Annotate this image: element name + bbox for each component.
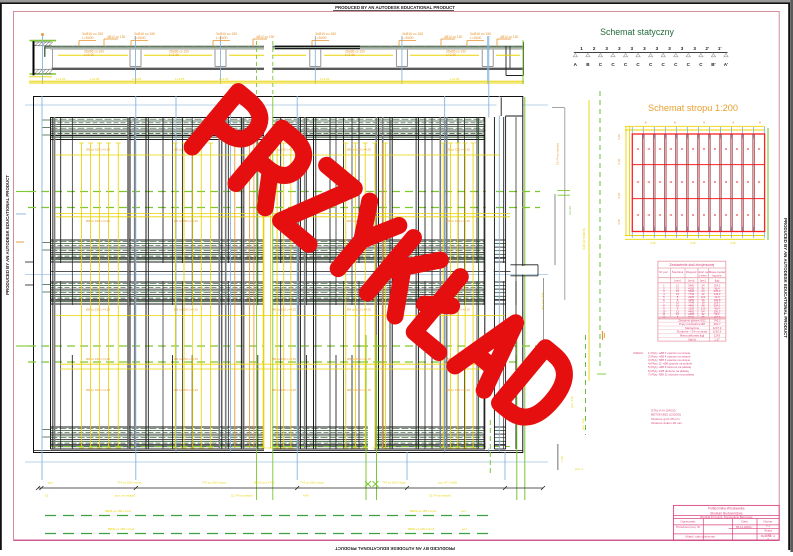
svg-text:L=4,25: L=4,25 — [175, 77, 185, 81]
svg-text:Ø8 co 150 L=4,25: Ø8 co 150 L=4,25 — [174, 388, 198, 392]
svg-text:L=4,25: L=4,25 — [90, 77, 100, 81]
svg-text:1 elem.: 1 elem. — [698, 273, 708, 277]
svg-text:Ø8 co 150 L=4,25: Ø8 co 150 L=4,25 — [86, 219, 110, 223]
svg-text:2': 2' — [705, 46, 709, 51]
svg-text:15: 15 — [45, 494, 49, 498]
svg-text:1,20: 1,20 — [560, 456, 564, 462]
svg-text:4,40 (w osiach): 4,40 (w osiach) — [582, 228, 586, 250]
svg-text:03.11.2009 r.: 03.11.2009 r. — [736, 525, 753, 529]
svg-text:Długość: Długość — [686, 270, 697, 274]
svg-text:Ø8 co 150 L=4,25: Ø8 co 150 L=4,25 — [272, 308, 296, 312]
svg-text:Średnica: Średnica — [672, 269, 684, 274]
svg-text:Ø8 co 150 L=4,25: Ø8 co 150 L=4,25 — [272, 357, 296, 361]
svg-text:1: 1 — [580, 46, 583, 51]
svg-text:L=5400: L=5400 — [470, 36, 482, 40]
svg-text:4,40: 4,40 — [617, 219, 621, 225]
svg-text:4Ø12 co 150: 4Ø12 co 150 — [500, 35, 518, 39]
svg-text:[kg]: [kg] — [715, 278, 720, 282]
svg-text:3: 3 — [656, 46, 659, 51]
svg-text:poz.: poz. — [461, 509, 467, 513]
svg-text:Nr poz.: Nr poz. — [659, 270, 669, 274]
svg-text:L=4,25: L=4,25 — [450, 77, 460, 81]
svg-text:1,27: 1,27 — [714, 337, 720, 341]
svg-text:L=4,25: L=4,25 — [56, 77, 66, 81]
svg-text:Otulenie dołem 20 mm: Otulenie dołem 20 mm — [651, 421, 683, 425]
svg-text:L=5400: L=5400 — [134, 36, 146, 40]
svg-text:Przedmiot proj. W: Przedmiot proj. W — [676, 525, 700, 529]
svg-text:4,40: 4,40 — [617, 134, 621, 140]
svg-text:B: B — [674, 121, 676, 125]
svg-text:Ø8 co 150 L=4,25: Ø8 co 150 L=4,25 — [347, 388, 371, 392]
svg-text:L=5400: L=5400 — [82, 36, 94, 40]
svg-text:774 co 150 L=poz.: 774 co 150 L=poz. — [382, 480, 407, 484]
svg-text:L=5400: L=5400 — [315, 36, 327, 40]
svg-text:L=5400: L=5400 — [216, 36, 228, 40]
svg-text:8Ø16 co L=770: 8Ø16 co L=770 — [254, 480, 275, 484]
svg-text:774 co 150 L=poz.: 774 co 150 L=poz. — [300, 480, 325, 484]
svg-text:Zestawienie stali zbrojeniowej: Zestawienie stali zbrojeniowej — [669, 263, 714, 267]
svg-text:poz. 2: poz. 2 — [575, 467, 584, 471]
svg-text:B: B — [759, 121, 761, 125]
svg-text:Ø8 co 150 L=4,25: Ø8 co 150 L=4,25 — [446, 148, 470, 152]
svg-text:Opracował:: Opracował: — [680, 520, 695, 524]
svg-text:15,74 (w osiach): 15,74 (w osiach) — [429, 494, 451, 498]
svg-text:4,40: 4,40 — [303, 494, 309, 498]
svg-text:7) Płyty 7Ø8 11 ułożone na poz: 7) Płyty 7Ø8 11 ułożone na pozławę — [648, 372, 694, 376]
svg-text:poz. 97 L=625: poz. 97 L=625 — [438, 480, 457, 484]
svg-text:PRODUCED BY AN AUTODESK EDUCAT: PRODUCED BY AN AUTODESK EDUCATIONAL PROD… — [783, 218, 788, 338]
svg-text:PRODUCED BY AN AUTODESK EDUCAT: PRODUCED BY AN AUTODESK EDUCATIONAL PROD… — [5, 175, 10, 295]
svg-text:8Ø40 co 150 L=poz.: 8Ø40 co 150 L=poz. — [408, 527, 435, 531]
svg-text:3: 3 — [681, 46, 684, 51]
svg-text:Ø8 co 150 L=4,25: Ø8 co 150 L=4,25 — [347, 357, 371, 361]
svg-text:UWAGI:: UWAGI: — [633, 351, 644, 355]
svg-text:4+6 poz. 440: 4+6 poz. 440 — [541, 292, 545, 310]
svg-text:L=4,25: L=4,25 — [132, 77, 142, 81]
svg-text:4,40: 4,40 — [730, 241, 736, 245]
svg-text:Skala: Skala — [764, 529, 772, 533]
svg-text:Ø8 co 150 L=4,25: Ø8 co 150 L=4,25 — [272, 388, 296, 392]
svg-text:774 co 150 L=poz.: 774 co 150 L=poz. — [202, 480, 227, 484]
svg-text:3: 3 — [643, 46, 646, 51]
svg-text:3: 3 — [631, 46, 634, 51]
svg-text:A': A' — [724, 62, 728, 67]
svg-text:L=2,30: L=2,30 — [84, 53, 94, 57]
svg-text:6.3: 6.3 — [766, 524, 771, 528]
svg-text:Stal [t]: Stal [t] — [688, 337, 696, 341]
svg-text:Ø8 co 150 L=4,25: Ø8 co 150 L=4,25 — [347, 308, 371, 312]
svg-text:łącznie: łącznie — [713, 273, 722, 277]
svg-text:Ø8 co 150 L=4,25: Ø8 co 150 L=4,25 — [86, 308, 110, 312]
svg-text:poz.: poz. — [462, 527, 468, 531]
svg-text:L=5400: L=5400 — [402, 36, 414, 40]
svg-text:1': 1' — [718, 46, 722, 51]
svg-text:PRODUCED BY AN AUTODESK EDUCAT: PRODUCED BY AN AUTODESK EDUCATIONAL PROD… — [335, 5, 455, 10]
svg-text:Ø8 co 150 L=4,25: Ø8 co 150 L=4,25 — [86, 148, 110, 152]
svg-text:Ø8 co 150 L=4,25: Ø8 co 150 L=4,25 — [174, 308, 198, 312]
svg-text:Schemat statyczny: Schemat statyczny — [600, 27, 674, 37]
svg-text:774 co 150 L=poz.: 774 co 150 L=poz. — [117, 480, 142, 484]
svg-text:4,40: 4,40 — [617, 158, 621, 164]
svg-text:Schemat stropu 1:200: Schemat stropu 1:200 — [648, 103, 738, 113]
svg-text:4Ø12 co 150: 4Ø12 co 150 — [256, 35, 274, 39]
svg-text:3: 3 — [605, 46, 608, 51]
svg-text:2: 2 — [593, 46, 596, 51]
svg-text:L=4,25: L=4,25 — [320, 77, 330, 81]
svg-text:8Ø40 co 150 L=poz.: 8Ø40 co 150 L=poz. — [108, 527, 135, 531]
svg-text:4,40: 4,40 — [650, 241, 656, 245]
svg-text:8Ø23 co 150 L=poz.: 8Ø23 co 150 L=poz. — [105, 509, 132, 513]
svg-text:B': B' — [711, 62, 715, 67]
svg-text:15,74 (w osiach): 15,74 (w osiach) — [556, 143, 560, 165]
svg-text:B: B — [703, 121, 705, 125]
svg-text:L=4,25: L=4,25 — [219, 77, 229, 81]
svg-text:Politechnika Wrocławska: Politechnika Wrocławska — [708, 506, 745, 510]
svg-text:poz. 440: poz. 440 — [581, 418, 585, 430]
svg-text:4Ø12 co 150: 4Ø12 co 150 — [107, 35, 125, 39]
svg-text:3x4,40: 3x4,40 — [568, 206, 572, 215]
svg-text:Układ i opis obliczenia: Układ i opis obliczenia — [685, 535, 715, 539]
svg-text:poz.: poz. — [48, 480, 54, 484]
svg-text:4,40: 4,40 — [690, 241, 696, 245]
svg-text:Ø8 co 150 L=4,25: Ø8 co 150 L=4,25 — [347, 148, 371, 152]
svg-text:Ø8 co 150 L=4,25: Ø8 co 150 L=4,25 — [174, 357, 198, 361]
svg-text:Ø8 co 150 L=4,25: Ø8 co 150 L=4,25 — [86, 388, 110, 392]
svg-text:Data: Data — [741, 520, 748, 524]
svg-text:poz. (w osiach): poz. (w osiach) — [115, 494, 135, 498]
svg-text:Ø8 co 150 L=4,25: Ø8 co 150 L=4,25 — [174, 219, 198, 223]
svg-text:3: 3 — [618, 46, 621, 51]
svg-text:PRODUCED BY AN AUTODESK EDUCAT: PRODUCED BY AN AUTODESK EDUCATIONAL PROD… — [335, 546, 455, 551]
svg-text:B: B — [645, 121, 647, 125]
svg-text:15,74 (w osiach): 15,74 (w osiach) — [231, 494, 253, 498]
svg-text:[mm]: [mm] — [688, 278, 694, 282]
svg-text:Wydział Inżynierii, Konstrukcj: Wydział Inżynierii, Konstrukcje Betonowe — [700, 515, 753, 519]
svg-text:L=2,30: L=2,30 — [446, 53, 456, 57]
svg-text:4Ø12 co 150: 4Ø12 co 150 — [444, 35, 462, 39]
svg-text:3: 3 — [668, 46, 671, 51]
svg-text:poz. 440: poz. 440 — [570, 396, 574, 408]
svg-text:[szt.]: [szt.] — [700, 278, 706, 282]
svg-text:[mm]: [mm] — [674, 278, 680, 282]
svg-text:L=2,30: L=2,30 — [169, 53, 179, 57]
svg-text:B: B — [732, 121, 734, 125]
svg-text:Ø8 co 150 L=4,25: Ø8 co 150 L=4,25 — [86, 357, 110, 361]
svg-text:3: 3 — [693, 46, 696, 51]
svg-text:Ø8 co 150 L=4,25: Ø8 co 150 L=4,25 — [446, 219, 470, 223]
svg-text:4,40: 4,40 — [617, 192, 621, 198]
svg-text:8Ø23 co 150 L=poz.: 8Ø23 co 150 L=poz. — [410, 509, 437, 513]
svg-text:Ø8 co 150 L=4,25: Ø8 co 150 L=4,25 — [446, 388, 470, 392]
svg-text:L=2,30: L=2,30 — [345, 53, 355, 57]
